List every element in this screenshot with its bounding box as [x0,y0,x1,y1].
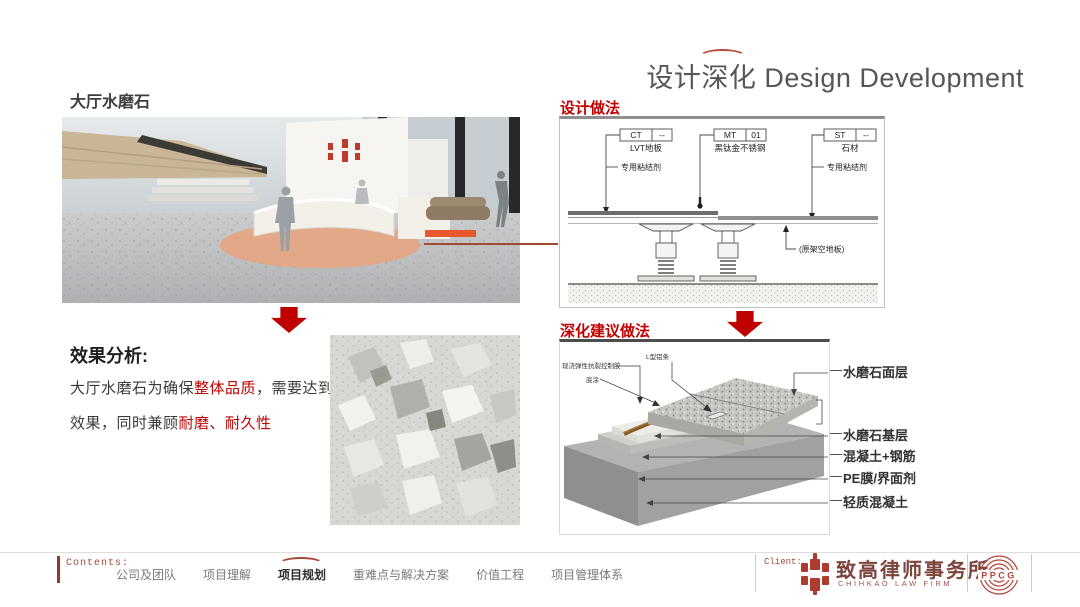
page-title-en: Design Development [764,63,1024,93]
leader-line [830,500,842,501]
client-label: Client: [764,557,802,567]
suggestion-label: 深化建议做法 [560,320,650,341]
raised-floor-note: (原架空地板) [799,244,845,254]
callout-membrane: 现浇弹性抗裂控制胶 [562,361,621,370]
layer-label-lightweight: 轻质混凝土 [843,492,908,511]
nav-item-understanding[interactable]: 项目理解 [203,566,251,583]
down-arrow-icon [271,307,307,333]
tag-num: -- [659,130,665,140]
layer-label-base: 水磨石基层 [843,425,908,444]
tag-code: MT [724,130,736,140]
suggestion-diagram: 现浇弹性抗裂控制胶 底涂 L型铝条 [559,339,830,535]
analysis-line-2: 效果，同时兼顾耐磨、耐久性 [70,412,272,433]
material-label: 黑钛金不锈钢 [714,143,765,153]
red-callout-line [424,243,558,245]
tag-num: -- [863,130,869,140]
footer-divider-vertical [755,554,756,592]
lobby-render-svg [62,117,520,303]
tag-num: 01 [751,130,761,140]
slide: 设计深化 Design Development 大厅水磨石 [0,0,1080,607]
callout-l-strip: L型铝条 [646,352,670,361]
footer-divider [0,552,1080,553]
material-label: LVT地板 [630,143,662,153]
terrazzo-swatch-image [330,335,520,525]
leader-line [830,370,842,371]
leader-line [830,433,842,434]
design-method-label: 设计做法 [560,97,620,118]
nav-item-planning[interactable]: 项目规划 [278,566,326,583]
footer-divider-vertical [1031,554,1032,592]
ppcg-letters: PPCG [981,571,1017,581]
adhesive-label-right: 专用粘结剂 [827,162,867,172]
layer-label-surface: 水磨石面层 [843,362,908,381]
nav-active-arc [279,557,323,570]
tag-code: CT [630,130,641,140]
page-title: 设计深化 Design Development [646,56,1024,95]
page-title-zh: 设计深化 [646,63,756,93]
callout-primer: 底涂 [586,375,600,384]
tag-code: ST [835,130,846,140]
red-marker-bar [425,230,476,237]
footer-nav: 公司及团队 项目理解 项目规划 重难点与解决方案 价值工程 项目管理体系 [116,566,623,583]
analysis-line-1: 大厅水磨石为确保整体品质，需要达到无缝 [70,377,365,398]
lobby-render-image [62,117,520,303]
client-name-en: CHIHKAO LAW FIRM [838,579,952,588]
analysis-heading: 效果分析: [70,342,148,368]
material-label: 石材 [841,143,859,153]
floor-pedestal [638,224,756,281]
nav-item-management[interactable]: 项目管理体系 [551,566,623,583]
layer-label-concrete: 混凝土+钢筋 [843,446,916,465]
ppcg-logo: PPCG [977,553,1021,602]
nav-item-company[interactable]: 公司及团队 [116,566,176,583]
nav-item-value[interactable]: 价值工程 [476,566,524,583]
leader-line [830,454,842,455]
contents-accent-bar [57,556,60,583]
title-accent-arc [699,49,746,64]
nav-item-difficulties[interactable]: 重难点与解决方案 [353,566,449,583]
down-arrow-icon [727,311,763,337]
layer-label-pe-film: PE膜/界面剂 [843,468,916,487]
adhesive-label-left: 专用粘结剂 [621,162,661,172]
design-method-diagram: CT -- MT 01 ST -- LVT地板 黑钛金不锈钢 石材 专用粘结剂 … [559,116,885,308]
footer-divider-vertical [967,554,968,592]
client-logo-icon [799,553,831,600]
leader-line [830,476,842,477]
section-heading: 大厅水磨石 [70,88,150,112]
